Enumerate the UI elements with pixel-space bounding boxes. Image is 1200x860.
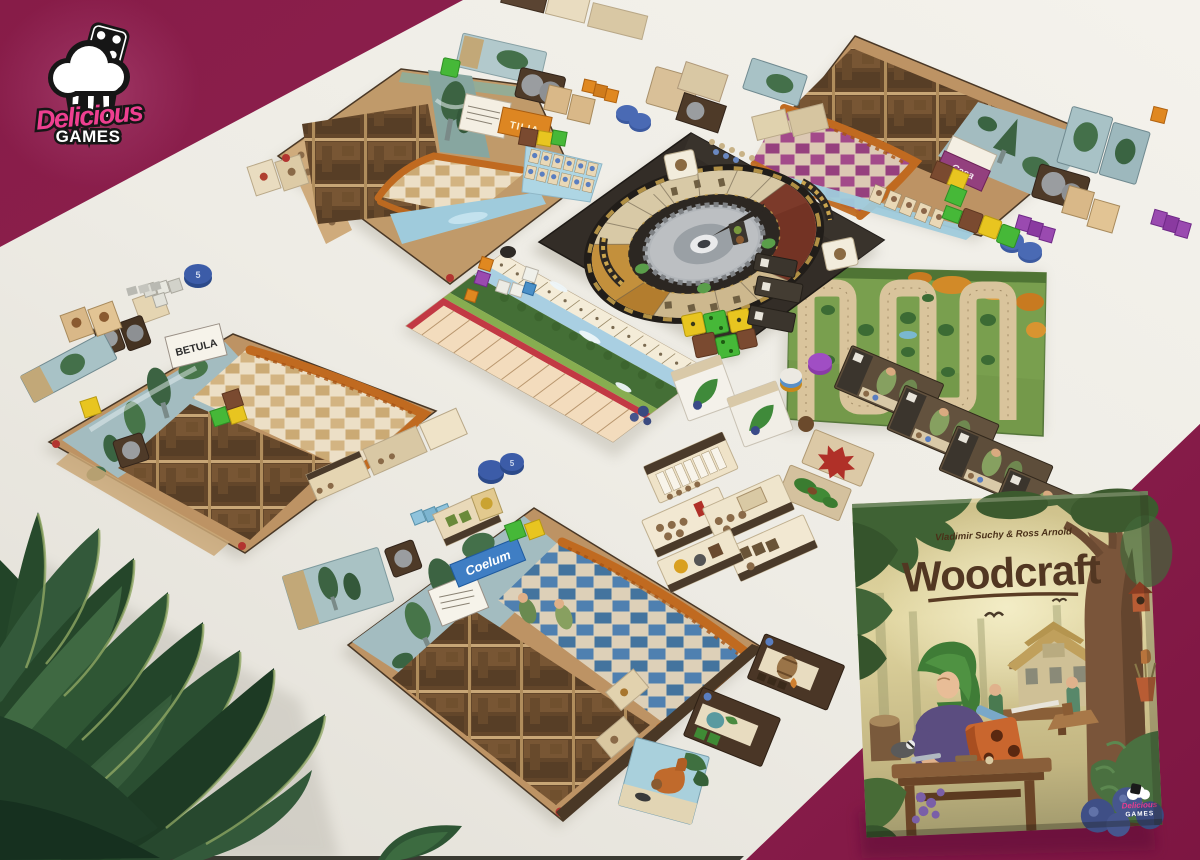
svg-text:GAMES: GAMES bbox=[56, 127, 121, 146]
svg-text:5: 5 bbox=[510, 459, 515, 468]
svg-text:Delicious: Delicious bbox=[1121, 800, 1157, 811]
svg-text:5: 5 bbox=[195, 270, 200, 280]
svg-text:GAMES: GAMES bbox=[1125, 810, 1154, 818]
